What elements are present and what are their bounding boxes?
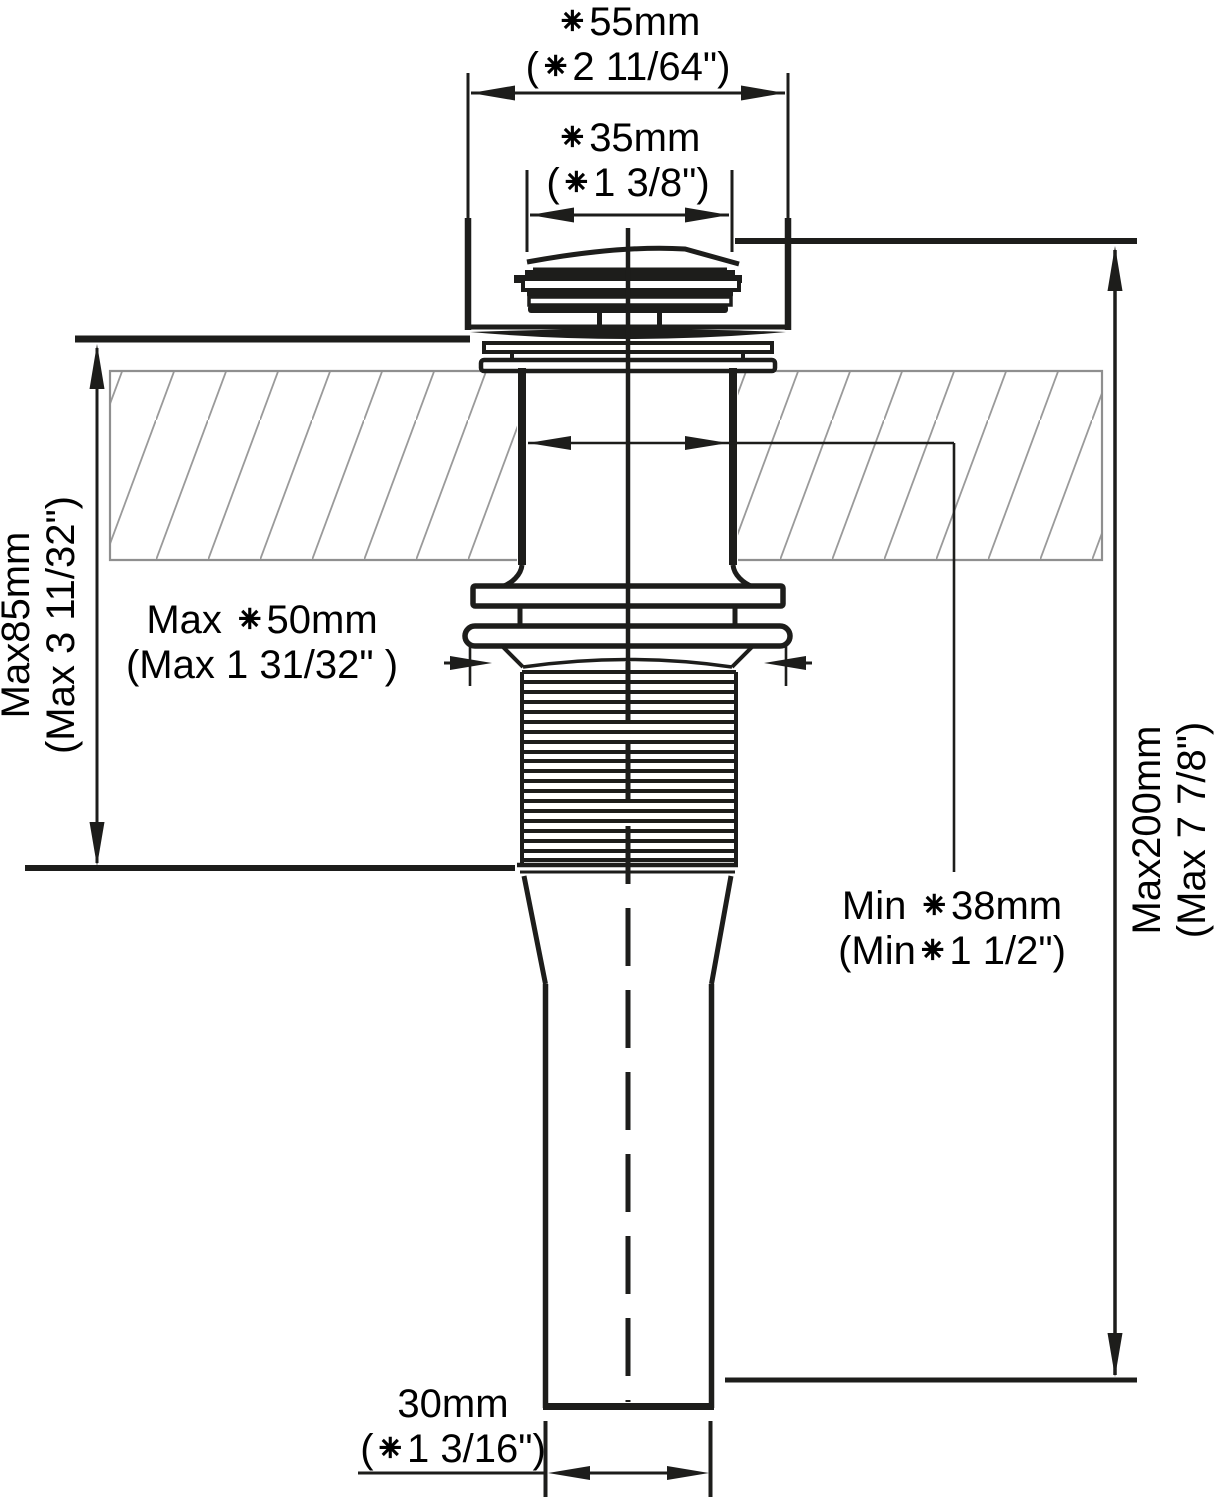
label-line: (⁕1 3/16") — [338, 1427, 568, 1472]
label-line: (Max 3 11/32") — [39, 460, 84, 790]
label-overall-length: Max200mm (Max 7 7/8") — [1125, 665, 1216, 995]
label-line: Max ⁕50mm — [112, 598, 412, 643]
label-cap-outer-diameter: ⁕55mm (⁕2 11/64") — [428, 0, 828, 90]
label-hole-diameter: Min ⁕38mm (Min⁕1 1/2") — [800, 884, 1104, 974]
label-line: 30mm — [338, 1382, 568, 1427]
label-line: (Max 1 31/32" ) — [112, 643, 412, 688]
label-line: ⁕35mm — [428, 116, 828, 161]
label-line: (Max 7 7/8") — [1170, 665, 1215, 995]
label-tailpipe-diameter: 30mm (⁕1 3/16") — [338, 1382, 568, 1472]
label-line: (⁕2 11/64") — [428, 45, 828, 90]
drain-dimension-diagram: ⁕55mm (⁕2 11/64") ⁕35mm (⁕1 3/8") Max85m… — [0, 0, 1216, 1500]
label-line: (⁕1 3/8") — [428, 161, 828, 206]
label-cap-top-diameter: ⁕35mm (⁕1 3/8") — [428, 116, 828, 206]
label-line: Max200mm — [1125, 665, 1170, 995]
label-line: ⁕55mm — [428, 0, 828, 45]
label-line: (Min⁕1 1/2") — [800, 929, 1104, 974]
label-line: Min ⁕38mm — [800, 884, 1104, 929]
label-locknut-diameter: Max ⁕50mm (Max 1 31/32" ) — [112, 598, 412, 688]
label-deck-thickness: Max85mm (Max 3 11/32") — [0, 460, 90, 790]
technical-line-drawing — [0, 0, 1216, 1500]
label-line: Max85mm — [0, 460, 39, 790]
